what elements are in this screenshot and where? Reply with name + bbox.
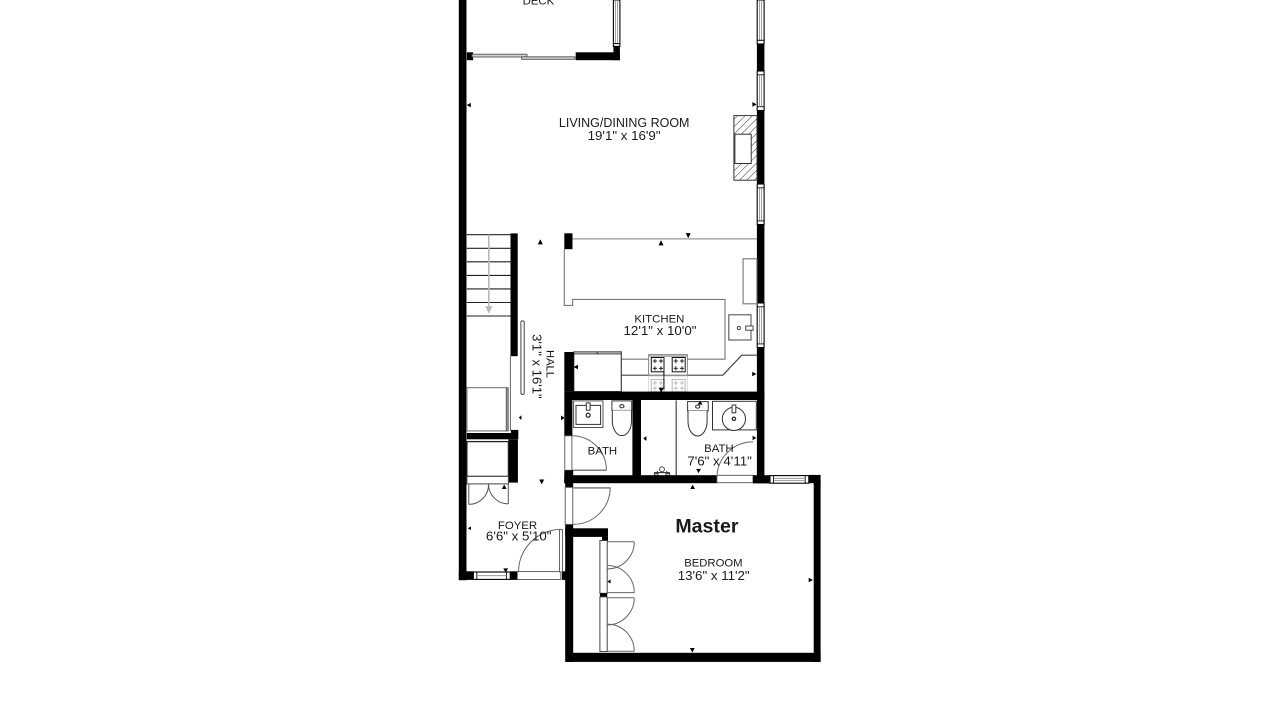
svg-text:12'1" x 10'0": 12'1" x 10'0" xyxy=(624,323,697,338)
svg-text:7'6" x 4'11": 7'6" x 4'11" xyxy=(687,454,752,469)
svg-text:BATH: BATH xyxy=(588,445,618,457)
svg-text:6'6" x 5'10": 6'6" x 5'10" xyxy=(486,529,552,544)
svg-text:19'1" x 16'9": 19'1" x 16'9" xyxy=(588,128,661,143)
svg-text:3'1" x 16'1": 3'1" x 16'1" xyxy=(529,334,544,399)
svg-text:DECK: DECK xyxy=(523,0,555,7)
svg-text:Master: Master xyxy=(675,516,739,538)
svg-text:13'6" x 11'2": 13'6" x 11'2" xyxy=(678,568,750,583)
